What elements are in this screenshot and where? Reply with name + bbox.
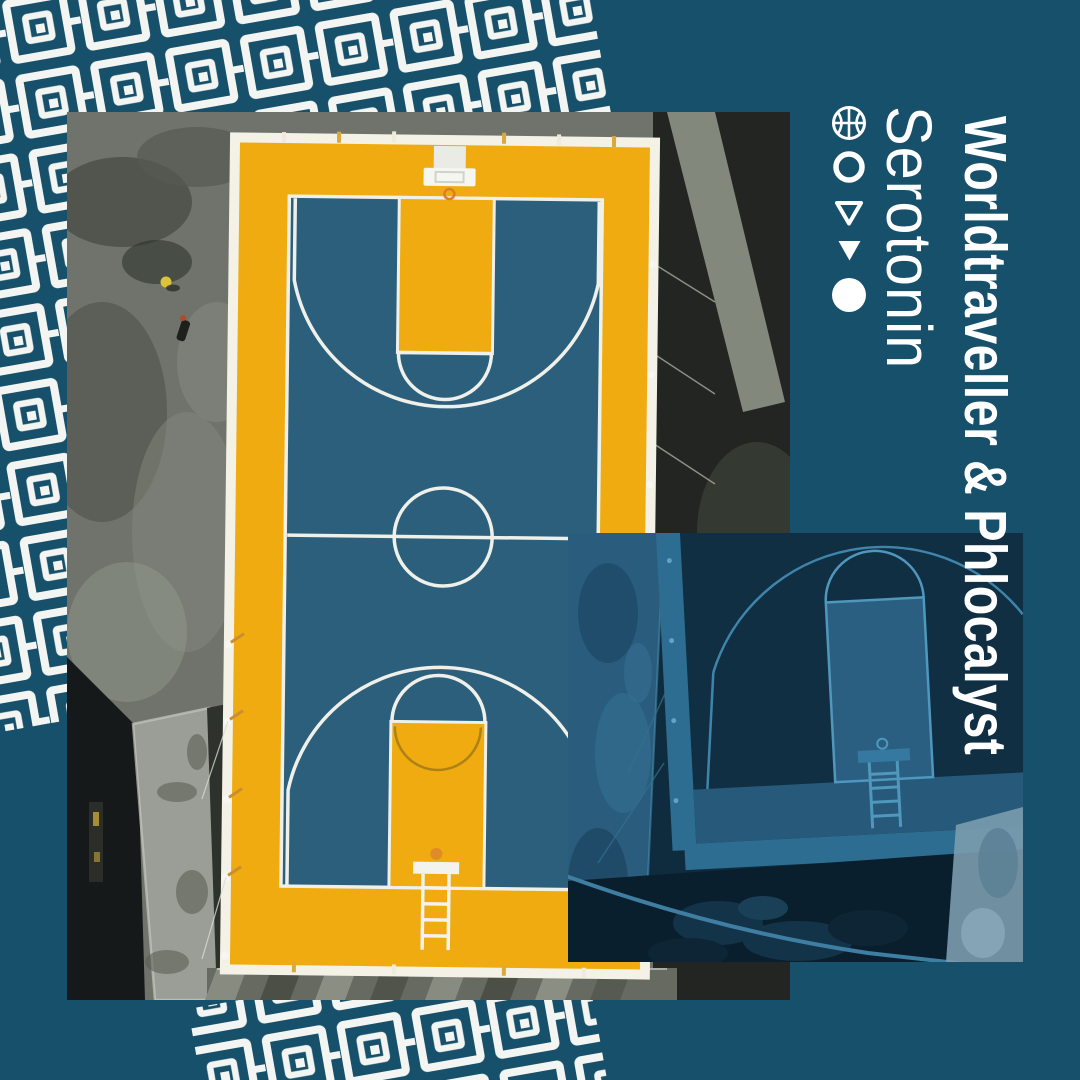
circle-filled-icon — [831, 277, 867, 313]
basketball-icon — [830, 104, 868, 142]
album-cover: Worldtraveller & Phlocalyst Serotonin — [0, 0, 1080, 1080]
triangle-down-filled-icon — [836, 238, 863, 263]
court-key-top — [397, 197, 494, 400]
triangle-down-outline-icon — [834, 199, 864, 227]
artist-name: Worldtraveller & Phlocalyst — [955, 116, 1014, 755]
circle-outline-icon — [833, 151, 865, 183]
album-title: Serotonin — [877, 106, 941, 369]
